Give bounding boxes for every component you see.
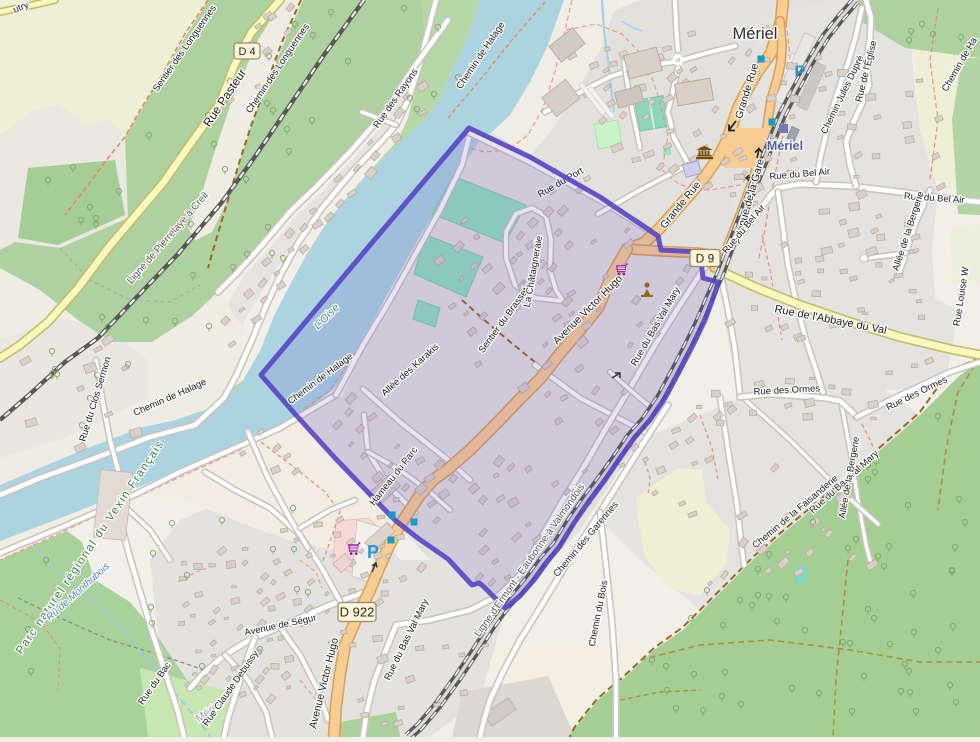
svg-text:P: P [367, 542, 379, 562]
svg-text:D 922: D 922 [340, 605, 375, 620]
svg-text:P: P [794, 62, 805, 81]
svg-text:D 9: D 9 [696, 251, 715, 265]
svg-text:Mériel: Mériel [767, 139, 803, 153]
svg-text:Mériel: Mériel [733, 25, 778, 43]
svg-text:D 4: D 4 [238, 46, 255, 58]
